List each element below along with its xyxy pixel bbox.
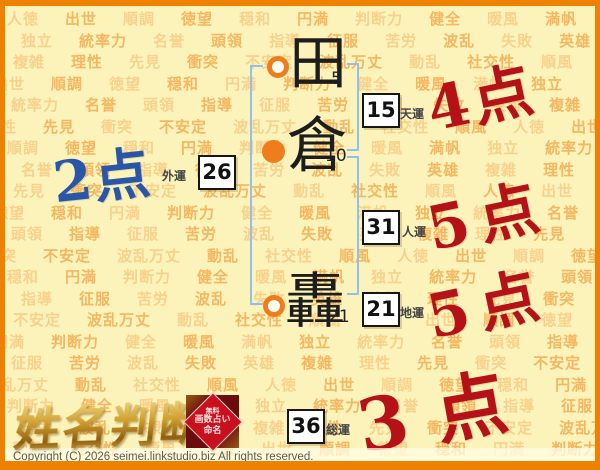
- bottom-border-strip: [5, 461, 595, 470]
- earth-luck-label: 地運: [400, 304, 424, 321]
- seal-text: 無料 画数占い 命名: [186, 395, 239, 448]
- heaven-luck-value-box: 15: [362, 93, 400, 128]
- total-luck-label: 総運: [326, 421, 350, 438]
- stroke-marker-ring-3: [263, 295, 285, 317]
- heaven-luck-bracket-line: [357, 63, 359, 151]
- stroke-count-2: 10: [325, 146, 347, 166]
- person-luck-label: 人運: [402, 223, 426, 240]
- outer-luck-bracket-line: [250, 65, 252, 305]
- site-logo[interactable]: 姓名判断: [11, 387, 211, 460]
- stroke-marker-dot-2: [262, 140, 285, 163]
- stroke-marker-ring-1: [267, 56, 289, 78]
- outer-luck-score: 2点: [50, 145, 154, 211]
- person-luck-value-box: 31: [362, 210, 400, 245]
- outer-luck-bracket-tick-bottom: [250, 303, 263, 305]
- seimei-result-page: 人徳出世順調徳望穏和円満判断力健全暖風満帆独立統率力名誉頭領指導征服苦労波乱失敗…: [0, 0, 600, 470]
- heaven-luck-bracket-tick-bottom: [347, 149, 359, 151]
- background-word-row: 人徳出世順調徳望穏和円満判断力健全暖風満帆: [7, 8, 600, 29]
- seal-line-2: 画数占い: [194, 415, 230, 425]
- person-luck-bracket-tick-top: [347, 156, 359, 158]
- total-luck-value-box: 36: [287, 409, 325, 444]
- outer-luck-value-box: 26: [198, 155, 236, 190]
- seal-line-3: 命名: [203, 426, 221, 436]
- stroke-count-3: 21: [328, 307, 350, 327]
- stroke-count-1: 5: [331, 69, 342, 89]
- outer-luck-bracket-tick-top: [250, 65, 263, 67]
- seal-line-1: 無料: [206, 407, 220, 415]
- free-naming-seal[interactable]: 無料 画数占い 命名: [186, 395, 239, 448]
- outer-luck-label: 外運: [162, 167, 186, 184]
- person-luck-bracket-tick-bottom: [347, 293, 359, 295]
- heaven-luck-bracket-tick-top: [347, 63, 359, 65]
- earth-luck-value-box: 21: [362, 292, 400, 327]
- person-luck-bracket-line: [357, 156, 359, 295]
- heaven-luck-label: 天運: [400, 105, 424, 122]
